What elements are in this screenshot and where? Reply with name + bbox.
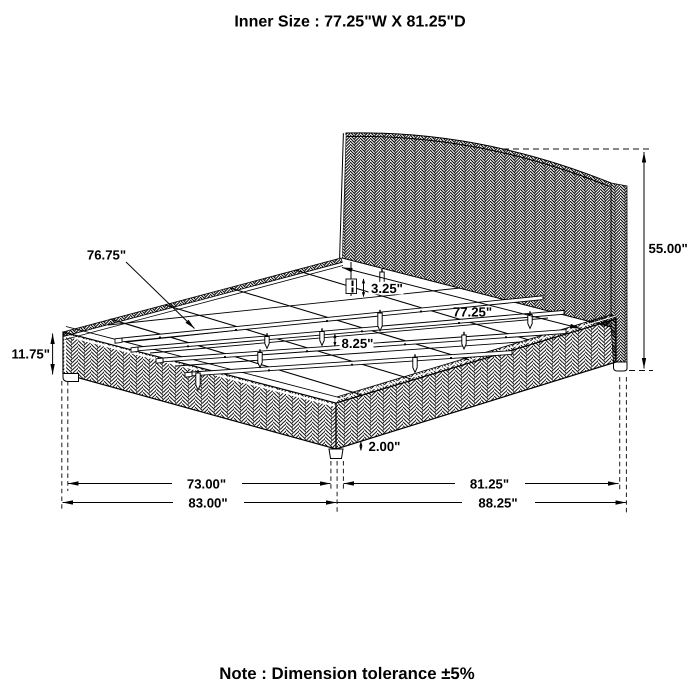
svg-text:11.75": 11.75" [11, 347, 50, 362]
svg-text:88.25": 88.25" [478, 496, 517, 511]
svg-text:73.00": 73.00" [187, 477, 226, 492]
svg-text:83.00": 83.00" [188, 496, 227, 511]
svg-text:3.25": 3.25" [371, 281, 403, 296]
svg-text:8.25": 8.25" [342, 336, 374, 351]
svg-text:77.25": 77.25" [453, 305, 492, 320]
svg-text:2.00": 2.00" [369, 439, 401, 454]
svg-text:Note : Dimension tolerance ±5%: Note : Dimension tolerance ±5% [219, 664, 474, 683]
svg-text:Inner Size : 77.25"W X 81.25"D: Inner Size : 77.25"W X 81.25"D [234, 14, 465, 31]
svg-text:55.00": 55.00" [649, 241, 688, 256]
svg-text:76.75": 76.75" [87, 248, 126, 263]
svg-text:81.25": 81.25" [470, 477, 509, 492]
